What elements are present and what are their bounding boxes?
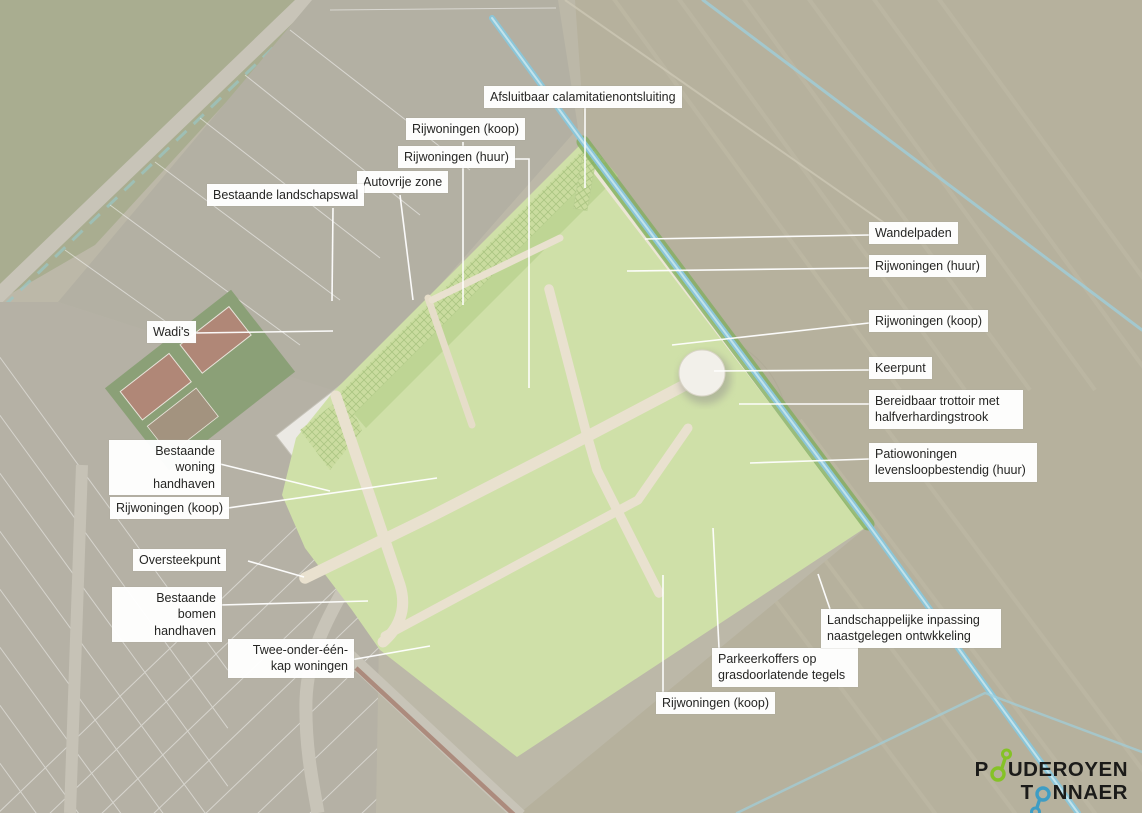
logo-teal-link-icon xyxy=(1034,783,1053,805)
logo-line2: T NNAER xyxy=(975,782,1128,805)
label-afsluitbaar-calamitatienontsluiting: Afsluitbaar calamitatienontsluiting xyxy=(484,86,682,108)
label-parkeerkoffers: Parkeerkoffers op grasdoorlatende tegels xyxy=(712,648,858,687)
label-rijwoningen-koop-bottom: Rijwoningen (koop) xyxy=(656,692,775,714)
label-rijwoningen-koop-top: Rijwoningen (koop) xyxy=(406,118,525,140)
label-rijwoningen-huur-top: Rijwoningen (huur) xyxy=(398,146,515,168)
logo-line2-prefix: T xyxy=(1021,782,1034,805)
label-wadis: Wadi's xyxy=(147,321,196,343)
label-keerpunt: Keerpunt xyxy=(869,357,932,379)
label-rijwoningen-koop-right: Rijwoningen (koop) xyxy=(869,310,988,332)
label-autovrije-zone: Autovrije zone xyxy=(357,171,448,193)
label-twee-onder-een-kap: Twee-onder-één-kap woningen xyxy=(228,639,354,678)
label-wandelpaden: Wandelpaden xyxy=(869,222,958,244)
label-bereidbaar-trottoir: Bereidbaar trottoir met halfverhardingst… xyxy=(869,390,1023,429)
logo-green-link-icon xyxy=(989,760,1008,782)
logo-line2-suffix: NNAER xyxy=(1053,782,1128,805)
logo-line1-suffix: UDEROYEN xyxy=(1008,759,1128,782)
pouderoyen-tonnaer-logo: P UDEROYEN T NNAER xyxy=(975,759,1128,805)
site-plan-page: Afsluitbaar calamitatienontsluiting Rijw… xyxy=(0,0,1142,813)
label-landschappelijke-inpassing: Landschappelijke inpassing naastgelegen … xyxy=(821,609,1001,648)
label-rijwoningen-koop-left: Rijwoningen (koop) xyxy=(110,497,229,519)
label-rijwoningen-huur-right: Rijwoningen (huur) xyxy=(869,255,986,277)
label-oversteekpunt: Oversteekpunt xyxy=(133,549,226,571)
label-patiowoningen: Patiowoningen levensloopbestendig (huur) xyxy=(869,443,1037,482)
label-bestaande-bomen-handhaven: Bestaande bomen handhaven xyxy=(112,587,222,642)
label-bestaande-landschapswal: Bestaande landschapswal xyxy=(207,184,364,206)
logo-line1: P UDEROYEN xyxy=(975,759,1128,782)
logo-line1-prefix: P xyxy=(975,759,989,782)
keerpunt-circle xyxy=(679,350,725,396)
label-bestaande-woning-handhaven: Bestaande woning handhaven xyxy=(109,440,221,495)
